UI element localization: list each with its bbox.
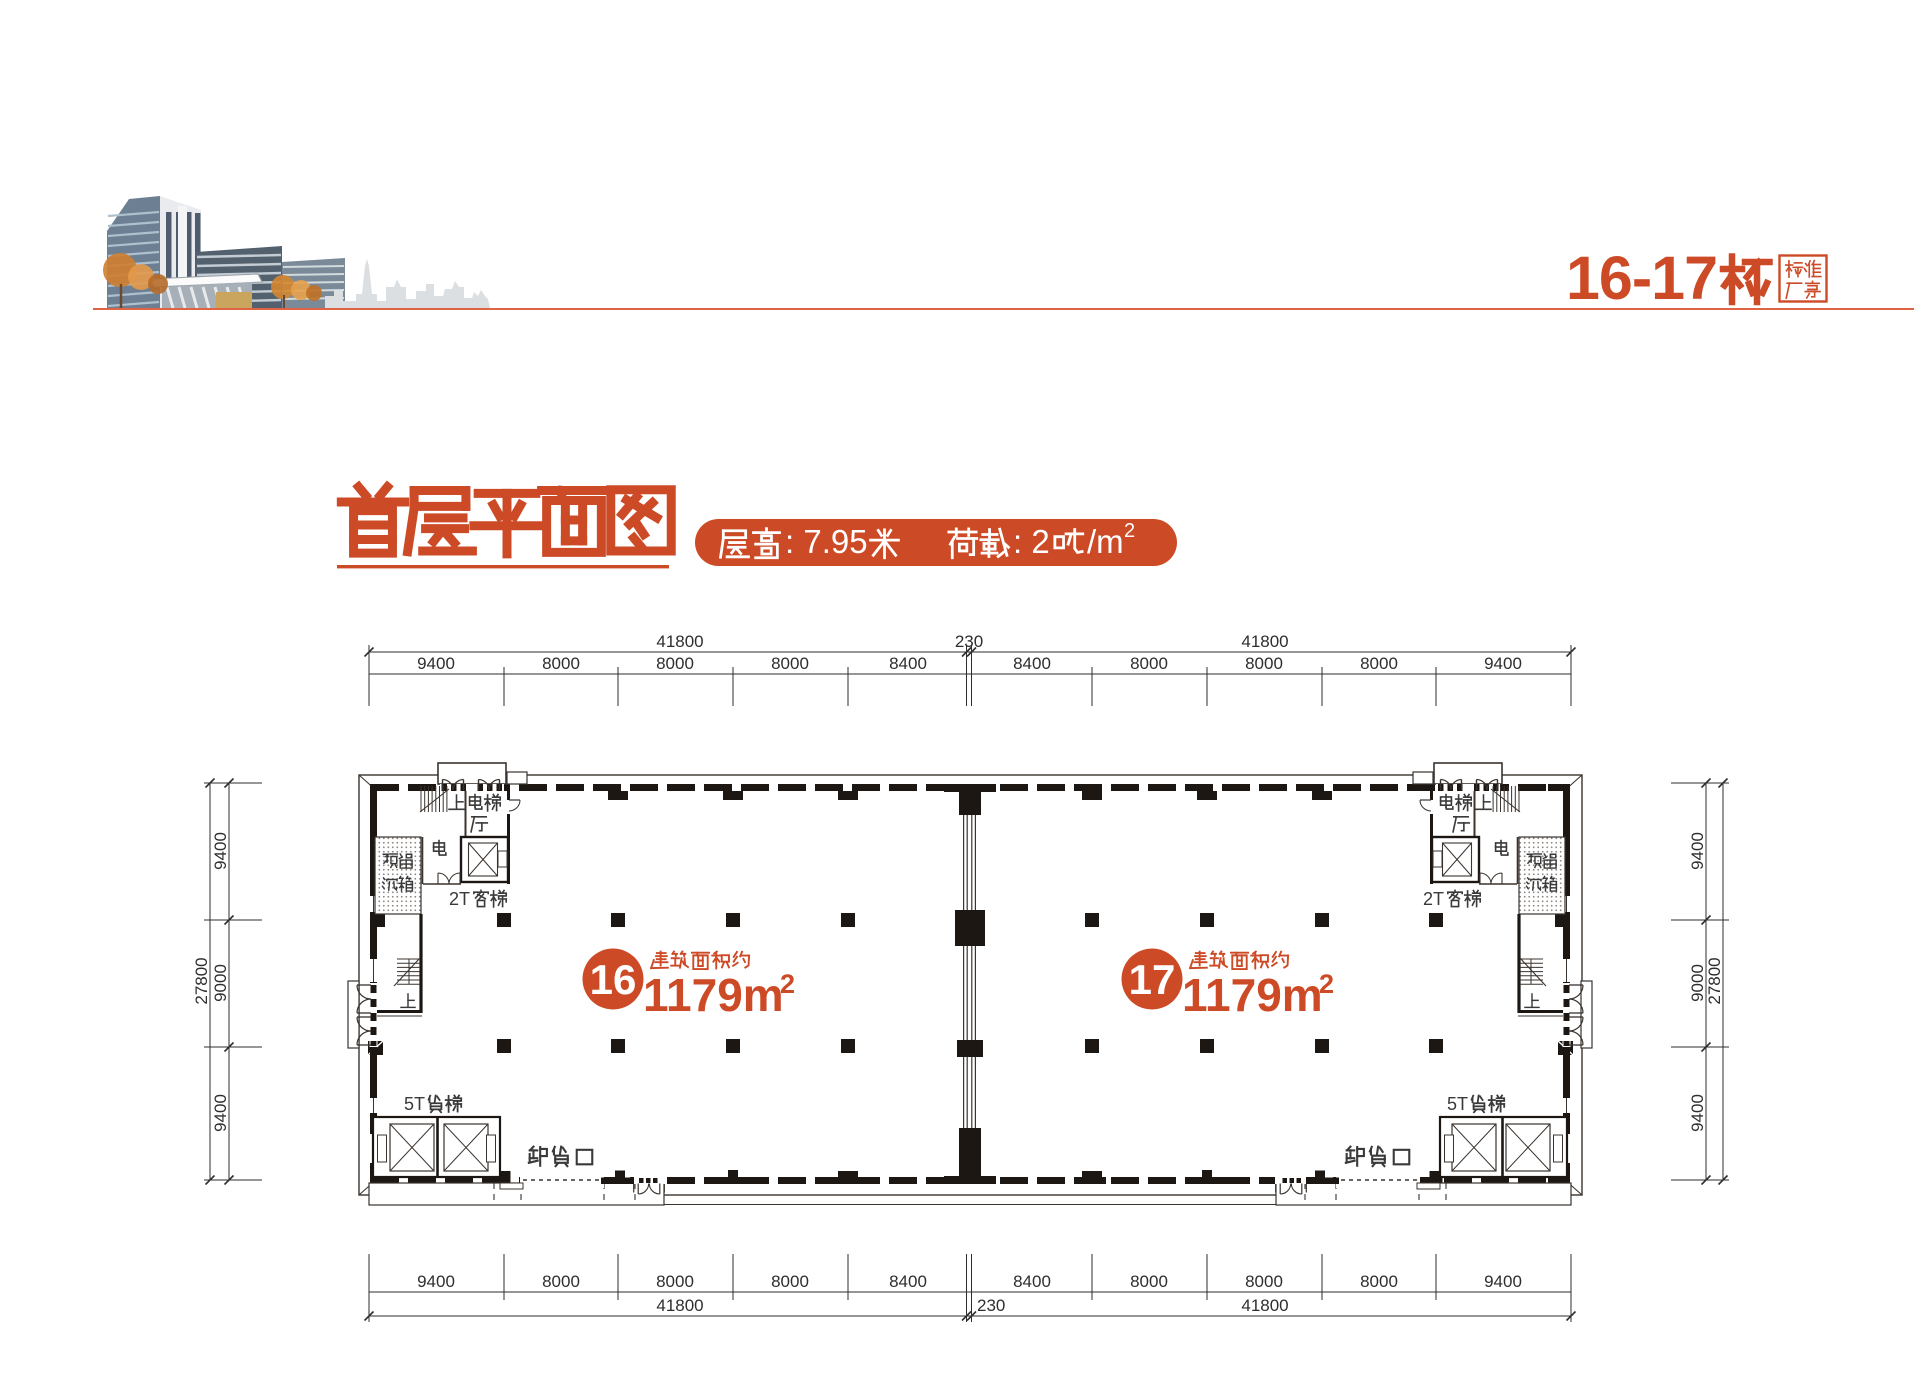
svg-text:8000: 8000: [656, 1272, 694, 1291]
svg-text:2: 2: [1319, 969, 1334, 999]
svg-text:/m: /m: [1087, 523, 1124, 560]
svg-text:8400: 8400: [1013, 654, 1051, 673]
svg-text:41800: 41800: [1241, 1296, 1288, 1315]
svg-text:: 7.95: : 7.95: [785, 523, 868, 560]
svg-text:5T: 5T: [404, 1094, 425, 1114]
svg-text:8400: 8400: [889, 654, 927, 673]
svg-text:: 2: : 2: [1013, 523, 1050, 560]
svg-text:8000: 8000: [1245, 654, 1283, 673]
svg-text:41800: 41800: [656, 1296, 703, 1315]
svg-text:1179m: 1179m: [1182, 969, 1323, 1021]
svg-text:16-17: 16-17: [1566, 244, 1717, 312]
svg-text:16: 16: [590, 956, 637, 1003]
svg-text:9400: 9400: [211, 1094, 230, 1132]
svg-text:27800: 27800: [1705, 957, 1724, 1004]
svg-text:9400: 9400: [1688, 832, 1707, 870]
svg-text:9400: 9400: [1484, 1272, 1522, 1291]
svg-text:230: 230: [977, 1296, 1005, 1315]
svg-text:17: 17: [1129, 956, 1176, 1003]
svg-text:9000: 9000: [211, 964, 230, 1002]
svg-text:8400: 8400: [889, 1272, 927, 1291]
svg-text:230: 230: [955, 632, 983, 651]
svg-text:8000: 8000: [771, 654, 809, 673]
svg-text:5T: 5T: [1447, 1094, 1468, 1114]
svg-text:8000: 8000: [542, 654, 580, 673]
svg-text:9400: 9400: [417, 1272, 455, 1291]
svg-text:2T: 2T: [449, 889, 470, 909]
svg-text:2T: 2T: [1423, 889, 1444, 909]
svg-text:9400: 9400: [417, 654, 455, 673]
svg-text:9400: 9400: [211, 832, 230, 870]
svg-text:9400: 9400: [1484, 654, 1522, 673]
svg-text:8000: 8000: [656, 654, 694, 673]
svg-text:41800: 41800: [1241, 632, 1288, 651]
svg-text:8000: 8000: [1130, 1272, 1168, 1291]
svg-text:8400: 8400: [1013, 1272, 1051, 1291]
svg-text:8000: 8000: [1360, 654, 1398, 673]
svg-text:9400: 9400: [1688, 1094, 1707, 1132]
svg-text:8000: 8000: [1245, 1272, 1283, 1291]
svg-text:27800: 27800: [192, 957, 211, 1004]
svg-text:2: 2: [1124, 520, 1135, 542]
svg-text:2: 2: [780, 969, 795, 999]
svg-text:8000: 8000: [1130, 654, 1168, 673]
svg-text:8000: 8000: [1360, 1272, 1398, 1291]
svg-text:1179m: 1179m: [643, 969, 784, 1021]
svg-text:8000: 8000: [542, 1272, 580, 1291]
svg-text:41800: 41800: [656, 632, 703, 651]
svg-text:8000: 8000: [771, 1272, 809, 1291]
